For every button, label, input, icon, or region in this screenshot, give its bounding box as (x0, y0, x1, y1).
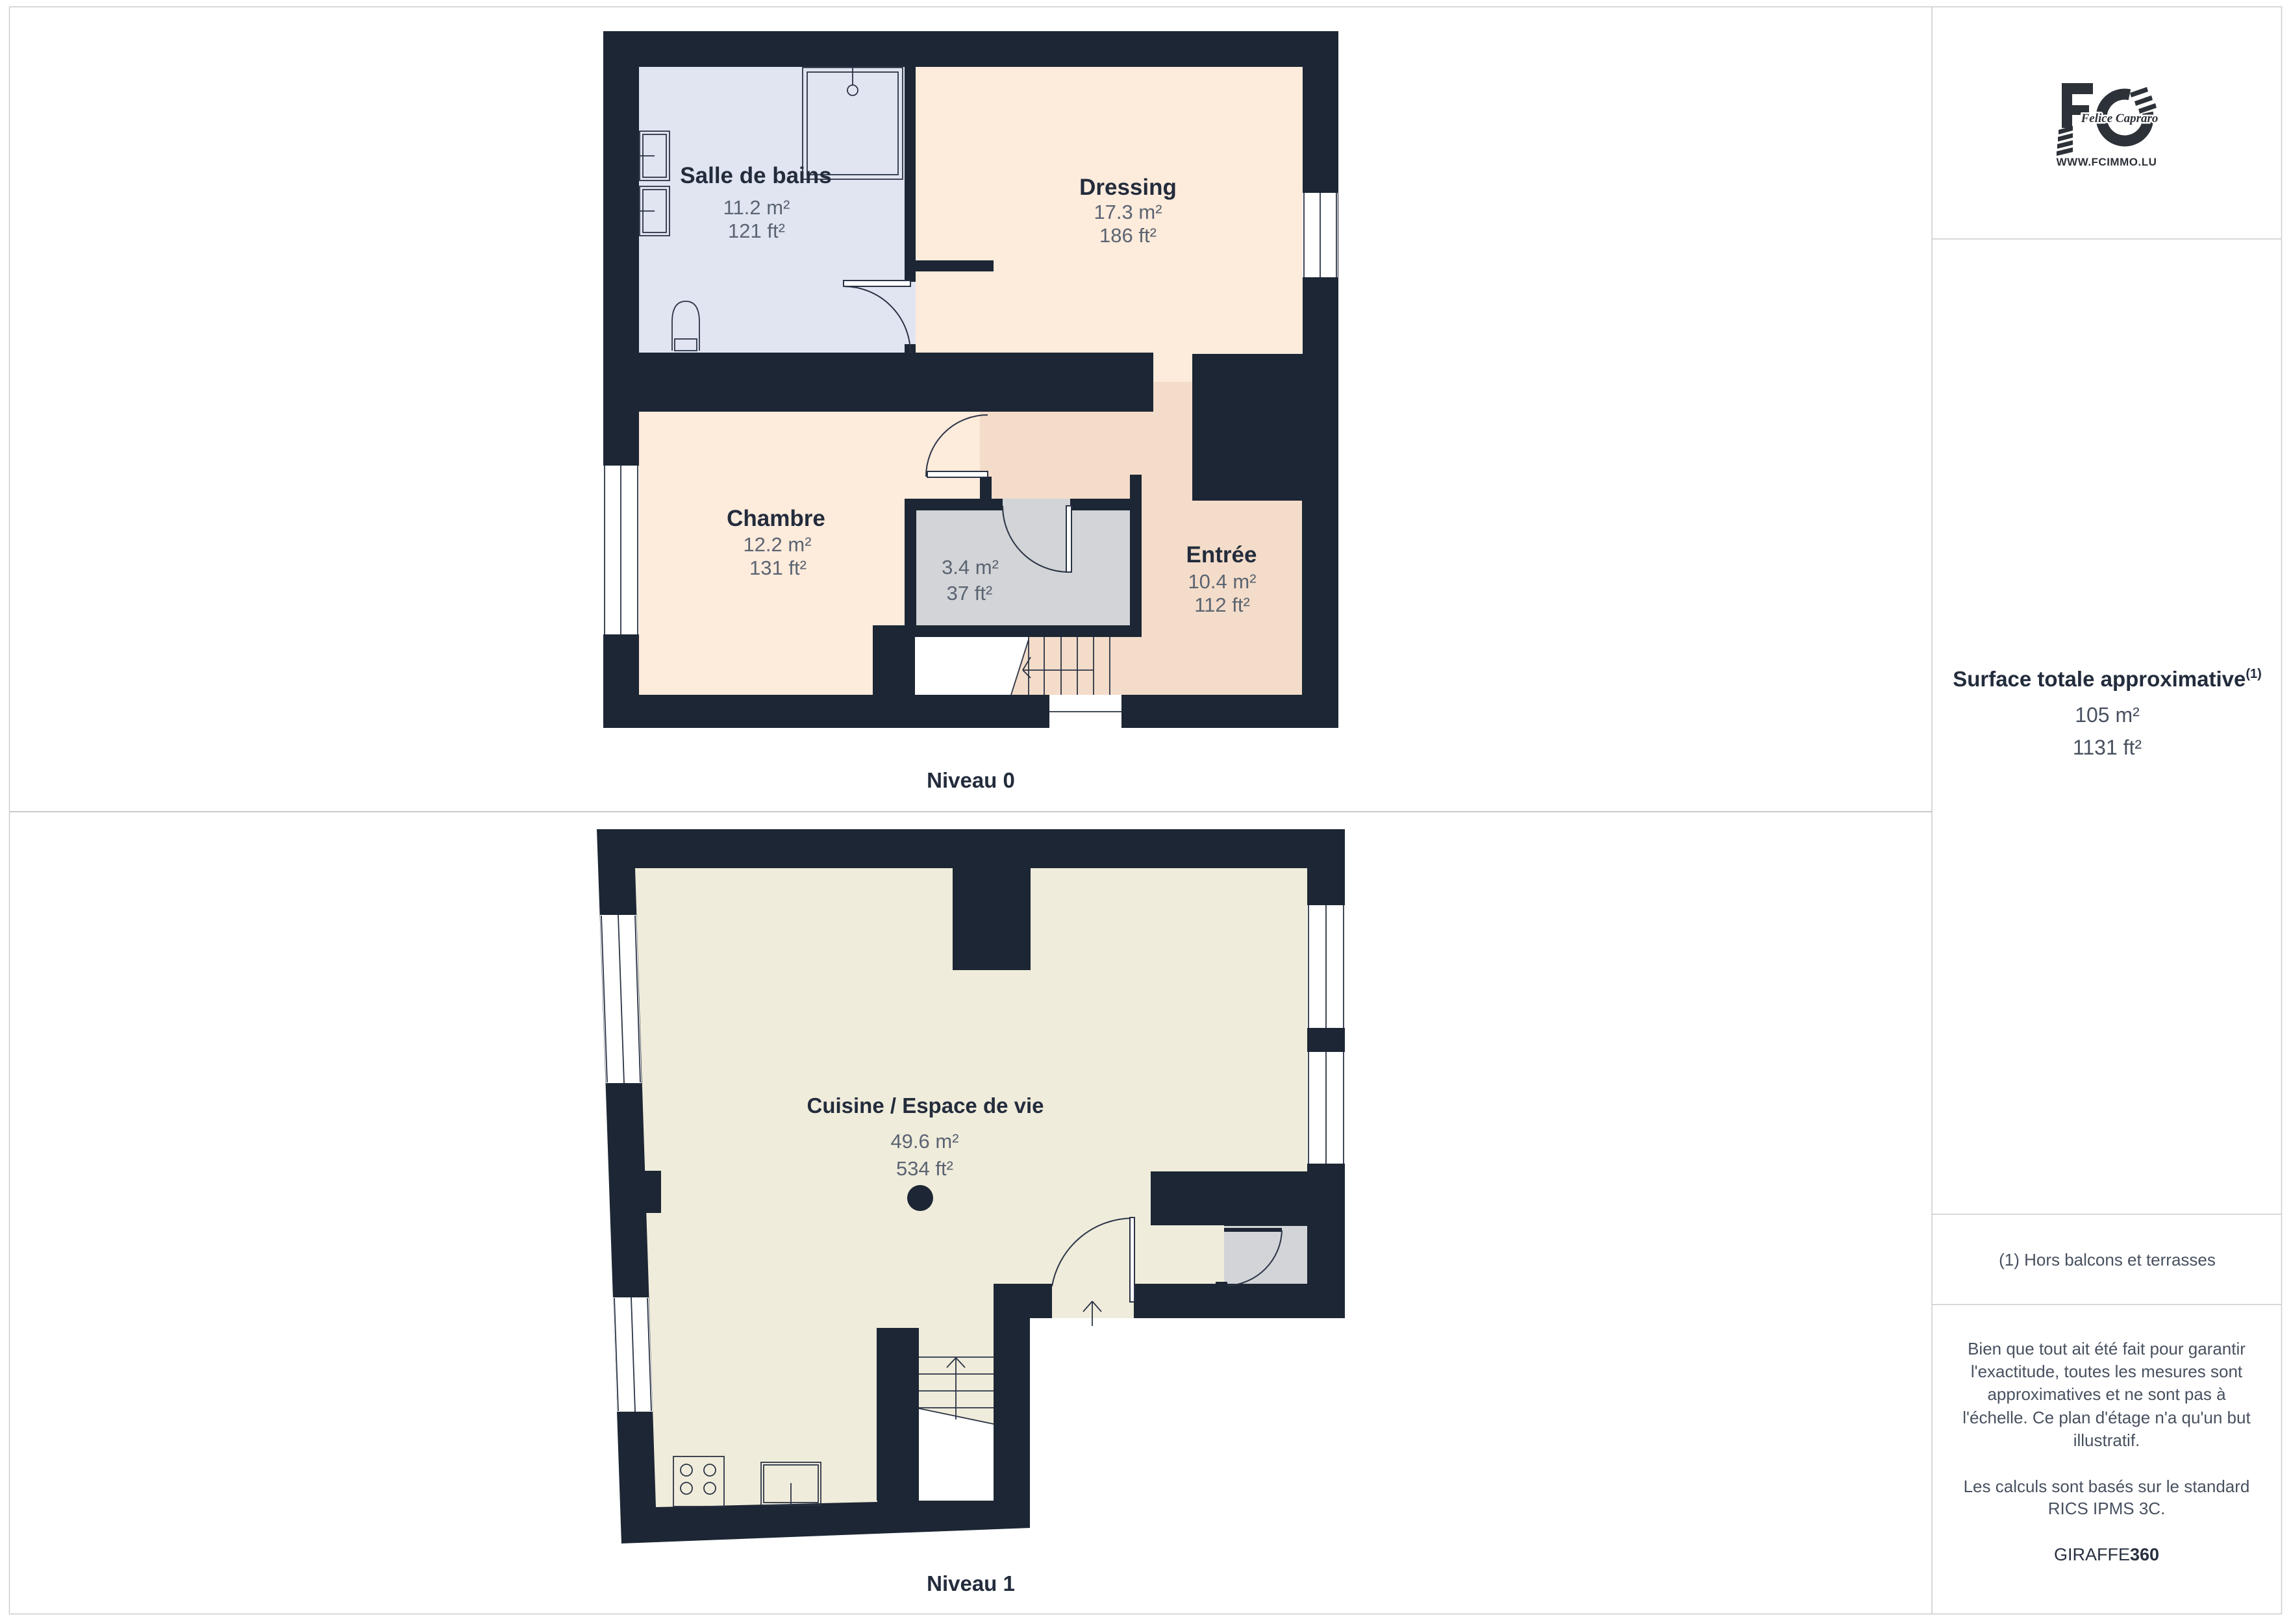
svg-text:l'échelle. Ce plan d'étage n'a: l'échelle. Ce plan d'étage n'a qu'un but (1962, 1408, 2251, 1427)
svg-text:RICS IPMS 3C.: RICS IPMS 3C. (2048, 1499, 2166, 1518)
svg-text:Les calculs sont basés sur le: Les calculs sont basés sur le standard (1964, 1477, 2250, 1496)
svg-text:11.2 m²: 11.2 m² (723, 196, 790, 219)
svg-text:Niveau 1: Niveau 1 (927, 1571, 1015, 1595)
svg-text:(1) Hors balcons et terrasses: (1) Hors balcons et terrasses (1999, 1250, 2216, 1269)
svg-text:105 m²: 105 m² (2075, 703, 2140, 727)
svg-text:Chambre: Chambre (727, 506, 825, 531)
svg-text:112 ft²: 112 ft² (1194, 593, 1250, 616)
svg-text:Cuisine / Espace de vie: Cuisine / Espace de vie (807, 1093, 1044, 1118)
svg-text:Dressing: Dressing (1079, 175, 1177, 200)
svg-text:l'exactitude, toutes les mesur: l'exactitude, toutes les mesures sont (1971, 1362, 2243, 1381)
svg-text:131 ft²: 131 ft² (749, 556, 807, 579)
svg-text:12.2 m²: 12.2 m² (743, 533, 811, 556)
svg-text:186 ft²: 186 ft² (1099, 224, 1157, 247)
svg-text:Niveau 0: Niveau 0 (927, 768, 1015, 792)
svg-text:49.6 m²: 49.6 m² (890, 1130, 958, 1153)
svg-text:10.4 m²: 10.4 m² (1188, 570, 1256, 593)
svg-text:Felice Capraro: Felice Capraro (2081, 112, 2159, 125)
svg-text:37 ft²: 37 ft² (947, 582, 993, 605)
svg-text:534 ft²: 534 ft² (896, 1157, 953, 1180)
svg-text:121 ft²: 121 ft² (728, 219, 785, 242)
svg-text:WWW.FCIMMO.LU: WWW.FCIMMO.LU (2057, 156, 2157, 168)
svg-text:GIRAFFE360: GIRAFFE360 (2054, 1545, 2159, 1564)
svg-text:Bien que tout ait été fait pou: Bien que tout ait été fait pour garantir (1968, 1339, 2246, 1358)
svg-text:Surface totale approximative(1: Surface totale approximative(1) (1953, 667, 2262, 691)
svg-text:Salle de bains: Salle de bains (680, 163, 831, 188)
svg-text:approximatives et ne sont pas: approximatives et ne sont pas à (1987, 1384, 2226, 1404)
svg-text:1131 ft²: 1131 ft² (2073, 736, 2142, 759)
svg-text:Entrée: Entrée (1186, 542, 1257, 568)
svg-text:3.4 m²: 3.4 m² (942, 556, 999, 579)
svg-text:17.3 m²: 17.3 m² (1094, 201, 1162, 223)
svg-text:illustratif.: illustratif. (2073, 1430, 2140, 1450)
